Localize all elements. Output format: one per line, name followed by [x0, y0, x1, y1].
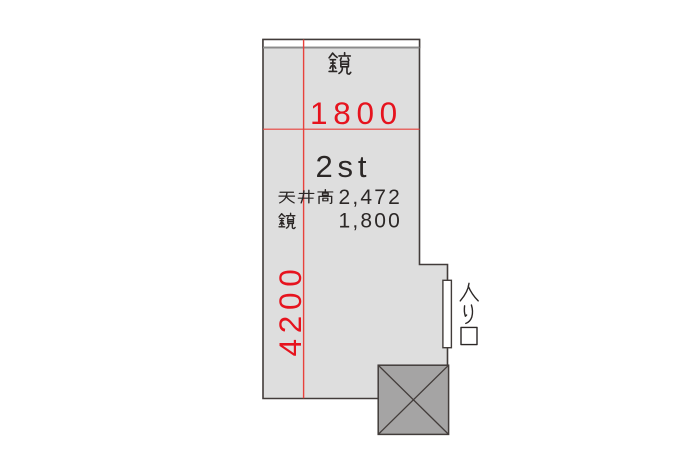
svg-text:4200: 4200	[272, 264, 308, 357]
svg-text:1,800: 1,800	[338, 209, 402, 232]
svg-text:2st: 2st	[316, 149, 372, 184]
svg-text:2,472: 2,472	[338, 186, 402, 209]
svg-text:1800: 1800	[310, 95, 403, 131]
